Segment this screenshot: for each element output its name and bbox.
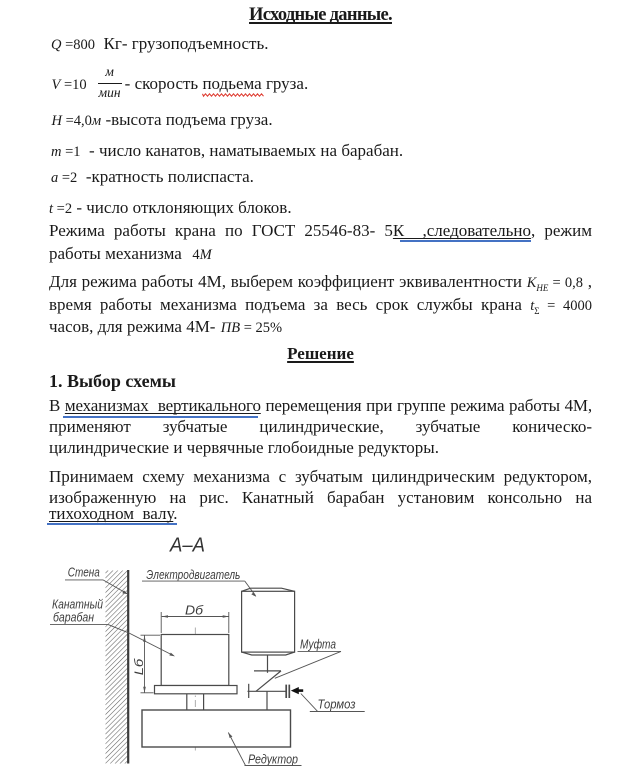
svg-text:А–А: А–А bbox=[169, 535, 205, 557]
svg-text:Тормоз: Тормоз bbox=[318, 696, 356, 711]
svg-text:Редуктор: Редуктор bbox=[248, 752, 298, 767]
svg-text:барабан: барабан bbox=[53, 610, 94, 625]
svg-text:Электродвигатель: Электродвигатель bbox=[146, 567, 240, 582]
svg-text:Муфта: Муфта bbox=[300, 637, 336, 652]
svg-text:Lб: Lб bbox=[132, 657, 146, 675]
svg-text:Dб: Dб bbox=[185, 602, 204, 617]
svg-text:Стена: Стена bbox=[68, 565, 100, 580]
